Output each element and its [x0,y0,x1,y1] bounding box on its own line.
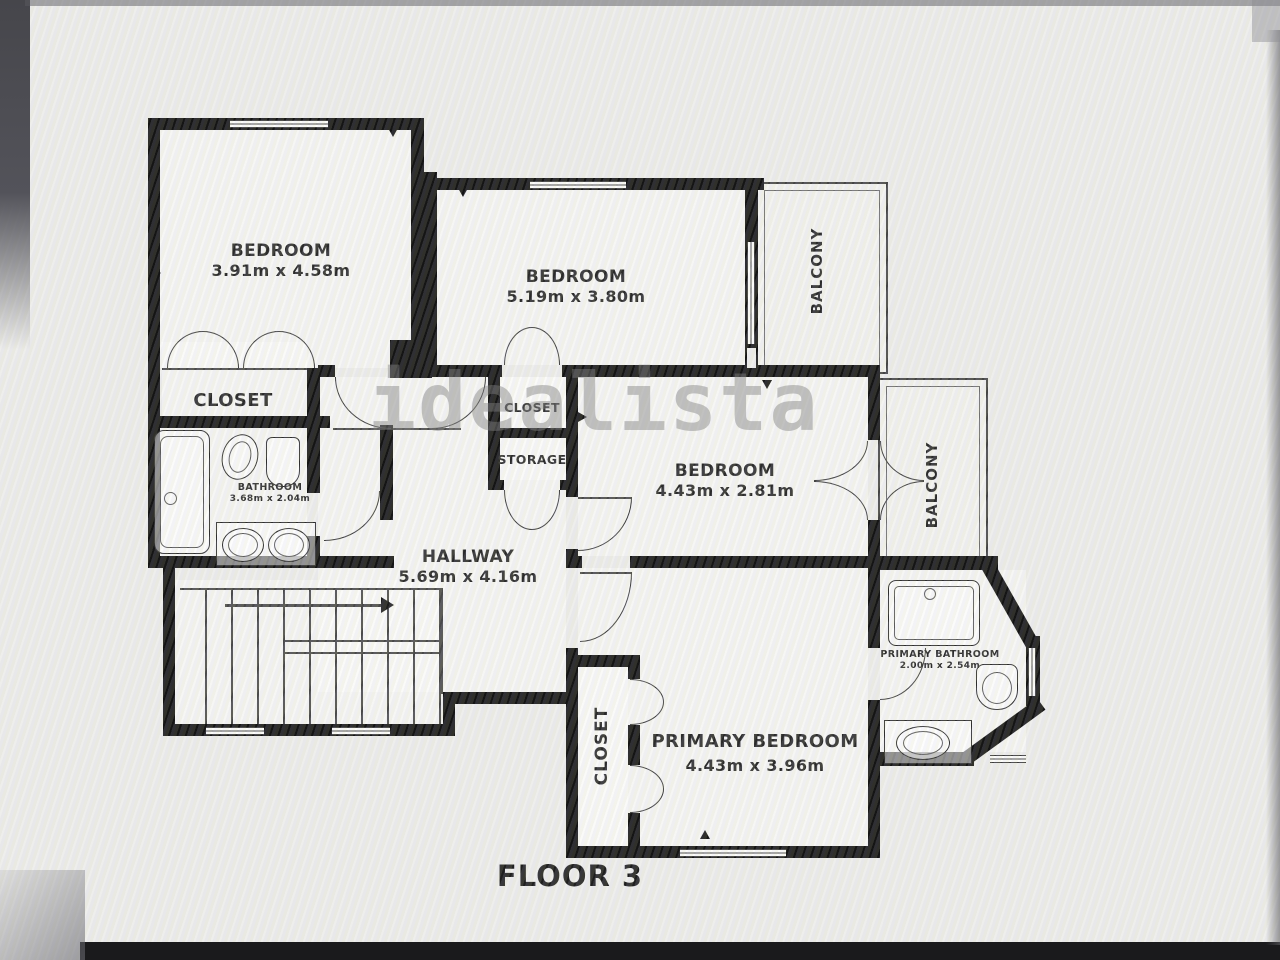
floor-plan: BEDROOM 3.91m x 4.58m BEDROOM 5.19m x 3.… [0,0,1280,960]
plan-line [335,590,337,724]
room-label-primary-bedroom: PRIMARY BEDROOM [610,732,900,753]
plan-line [309,590,311,724]
window [1028,648,1036,696]
wall-segment [148,416,330,428]
plan-line [283,590,285,724]
plan-line [231,590,233,724]
room-dims-hallway: 5.69m x 4.16m [368,568,568,586]
room-dims-bedroom-1: 3.91m x 4.58m [161,262,401,280]
wall-segment [307,368,320,420]
room-label-closet-primary: CLOSET [592,686,612,806]
plan-line [285,652,439,654]
wall-segment [628,813,640,848]
room-dims-primary-bedroom: 4.43m x 3.96m [610,757,900,775]
wall-segment [630,556,880,568]
screen-photo: BEDROOM 3.91m x 4.58m BEDROOM 5.19m x 3.… [0,0,1280,960]
window [680,849,786,857]
dimension-tick [458,188,468,197]
window [990,755,1026,763]
plan-line [439,590,441,724]
room-label-balcony-top: BALCONY [808,211,826,331]
sink-basin-inner [274,533,304,557]
window [206,727,264,735]
sink-basin-inner [903,731,943,755]
dimension-tick [388,128,398,137]
dimension-tick [152,268,161,278]
room-dims-bedroom-2: 5.19m x 3.80m [456,288,696,306]
wall-segment [560,480,578,490]
room-dims-primary-bathroom: 2.00m x 2.54m [876,661,1004,671]
wall-segment [443,692,578,704]
plan-line [283,640,285,654]
plan-line [361,590,363,724]
wall-segment [307,416,320,493]
bathtub-drain [164,492,177,505]
wall-segment [868,377,880,440]
room-label-bathroom: BATHROOM [212,483,328,494]
idealista-watermark: idealista [368,356,819,449]
toilet-inner [982,672,1012,704]
wall-segment [628,655,640,679]
room-label-balcony-side: BALCONY [923,425,941,545]
sink-basin-inner [228,533,258,557]
dimension-tick [700,830,710,839]
shower-drain [924,588,936,600]
window [747,242,755,344]
wall-segment [868,556,880,648]
room-label-primary-bathroom: PRIMARY BATHROOM [876,650,1004,661]
wall-segment [424,178,437,377]
bidet [266,437,300,487]
room-label-closet-main: CLOSET [163,391,303,412]
wall-segment [566,648,578,858]
room-label-bedroom-1: BEDROOM [161,242,401,262]
room-label-hallway: HALLWAY [368,548,568,568]
plan-line [162,368,318,370]
wall-segment [318,365,335,377]
wall-segment [411,118,424,350]
plan-line [205,590,207,724]
window [530,181,626,189]
plan-line [413,590,415,724]
wall-segment [868,700,880,858]
plan-line [441,588,443,694]
room-dims-bathroom: 3.68m x 2.04m [212,494,328,504]
room-label-storage: STORAGE [488,453,576,467]
plan-line [285,640,439,642]
stairs-direction-arrow [381,597,394,613]
room-label-bedroom-3: BEDROOM [605,462,845,482]
floor-title: FLOOR 3 [440,860,700,893]
window [332,727,390,735]
window [230,120,328,128]
wall-segment [868,520,880,568]
room-dims-bedroom-3: 4.43m x 2.81m [605,482,845,500]
plan-line [225,604,381,607]
wall-segment [163,556,175,736]
room-label-bedroom-2: BEDROOM [456,268,696,288]
wall-segment [488,480,504,490]
plan-line [257,590,259,724]
